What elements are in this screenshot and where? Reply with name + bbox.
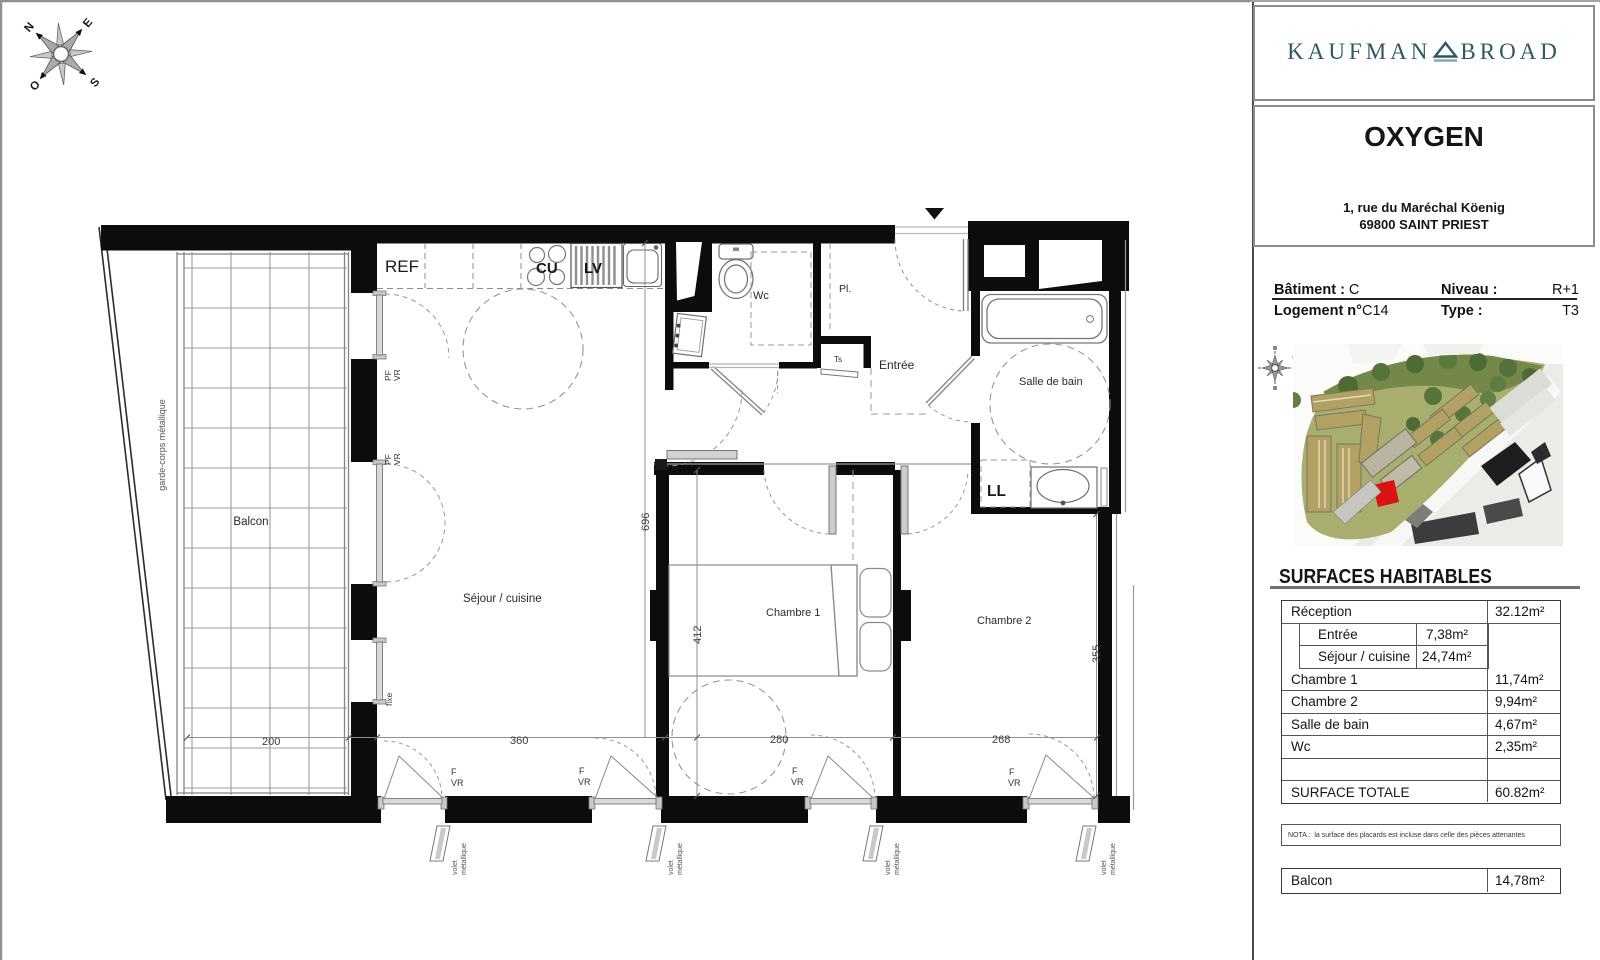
- svg-text:355: 355: [1091, 645, 1103, 663]
- svg-text:200: 200: [262, 736, 280, 748]
- svg-text:volet: volet: [668, 860, 675, 875]
- svg-text:métallique: métallique: [461, 843, 468, 875]
- svg-text:VR: VR: [791, 777, 804, 787]
- svg-text:Wc: Wc: [753, 290, 769, 302]
- svg-text:696: 696: [640, 513, 652, 531]
- svg-text:volet: volet: [452, 860, 459, 875]
- svg-text:F: F: [1009, 767, 1015, 777]
- svg-text:VR: VR: [392, 369, 402, 381]
- svg-text:métallique: métallique: [677, 843, 684, 875]
- svg-text:Chambre 1: Chambre 1: [766, 607, 820, 619]
- svg-text:REF: REF: [385, 257, 419, 276]
- svg-text:F: F: [579, 766, 585, 776]
- svg-text:volet: volet: [885, 860, 892, 875]
- svg-text:VR: VR: [392, 453, 402, 465]
- svg-text:VR: VR: [1008, 778, 1021, 788]
- svg-text:268: 268: [992, 734, 1010, 746]
- svg-text:volet: volet: [1101, 860, 1108, 875]
- svg-text:métallique: métallique: [1110, 843, 1117, 875]
- svg-text:280: 280: [770, 734, 788, 746]
- svg-text:fixe: fixe: [384, 693, 394, 707]
- svg-text:Pl.: Pl.: [839, 283, 851, 295]
- svg-text:VR: VR: [578, 777, 591, 787]
- svg-text:F: F: [451, 767, 457, 777]
- svg-text:Salle de bain: Salle de bain: [1019, 376, 1083, 388]
- svg-text:Balcon: Balcon: [233, 516, 268, 528]
- svg-text:garde-corps métallique: garde-corps métallique: [157, 399, 167, 491]
- svg-text:LV: LV: [584, 260, 602, 277]
- svg-text:F: F: [792, 766, 798, 776]
- svg-text:412: 412: [692, 626, 704, 644]
- svg-text:Chambre 2: Chambre 2: [977, 615, 1031, 627]
- svg-text:LL: LL: [987, 483, 1006, 500]
- svg-text:Entrée: Entrée: [879, 358, 915, 372]
- svg-text:métallique: métallique: [894, 843, 901, 875]
- svg-text:360: 360: [510, 735, 528, 747]
- svg-text:CU: CU: [536, 260, 558, 277]
- svg-text:VR: VR: [451, 778, 464, 788]
- svg-text:Ts: Ts: [834, 355, 842, 364]
- svg-text:Séjour / cuisine: Séjour / cuisine: [463, 593, 542, 605]
